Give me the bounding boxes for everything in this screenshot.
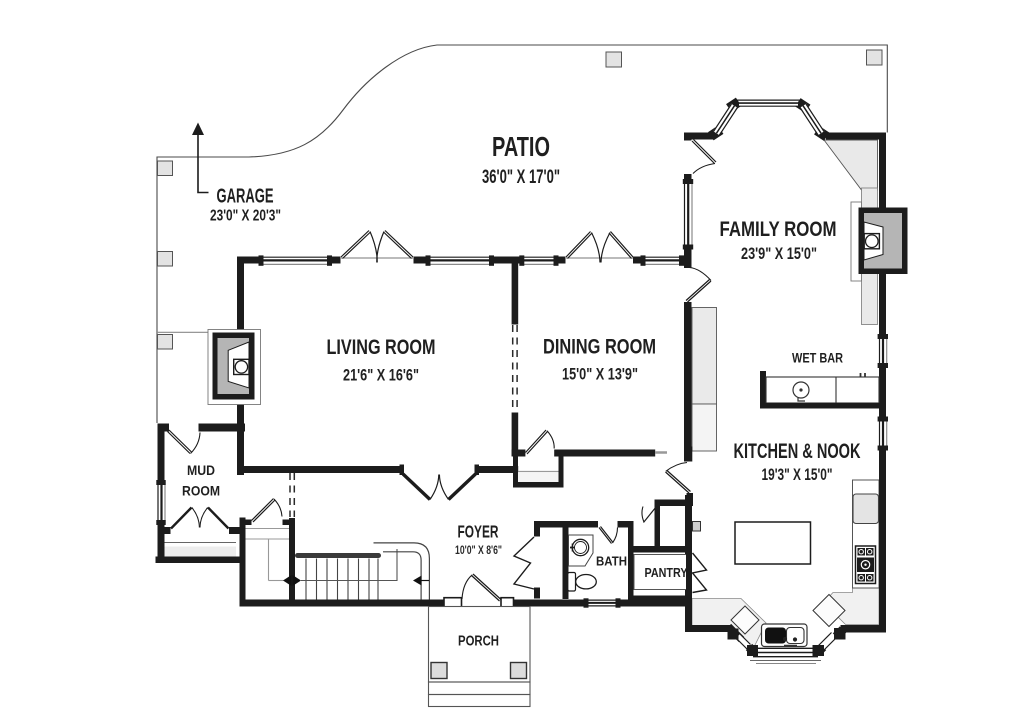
svg-text:23'0" X 20'3": 23'0" X 20'3" (210, 208, 281, 225)
svg-text:FAMILY ROOM: FAMILY ROOM (720, 218, 837, 241)
svg-text:LIVING ROOM: LIVING ROOM (327, 336, 436, 359)
svg-text:MUD: MUD (187, 462, 215, 478)
svg-text:PANTRY: PANTRY (645, 565, 688, 580)
svg-text:ROOM: ROOM (182, 483, 220, 499)
svg-text:WET BAR: WET BAR (792, 351, 843, 366)
svg-text:15'0" X 13'9": 15'0" X 13'9" (562, 366, 638, 384)
svg-text:21'6" X 16'6": 21'6" X 16'6" (343, 367, 419, 385)
svg-text:23'9" X 15'0": 23'9" X 15'0" (741, 245, 817, 263)
svg-text:PATIO: PATIO (492, 131, 550, 162)
svg-text:GARAGE: GARAGE (217, 186, 274, 208)
svg-text:FOYER: FOYER (458, 522, 499, 542)
svg-text:19'3" X 15'0": 19'3" X 15'0" (762, 466, 833, 484)
svg-text:BATH: BATH (596, 555, 627, 569)
svg-text:36'0" X 17'0": 36'0" X 17'0" (482, 167, 560, 188)
svg-text:10'0" X 8'6": 10'0" X 8'6" (455, 545, 502, 557)
svg-text:KITCHEN & NOOK: KITCHEN & NOOK (734, 440, 861, 463)
svg-text:PORCH: PORCH (458, 633, 499, 650)
svg-text:DINING ROOM: DINING ROOM (543, 336, 656, 359)
